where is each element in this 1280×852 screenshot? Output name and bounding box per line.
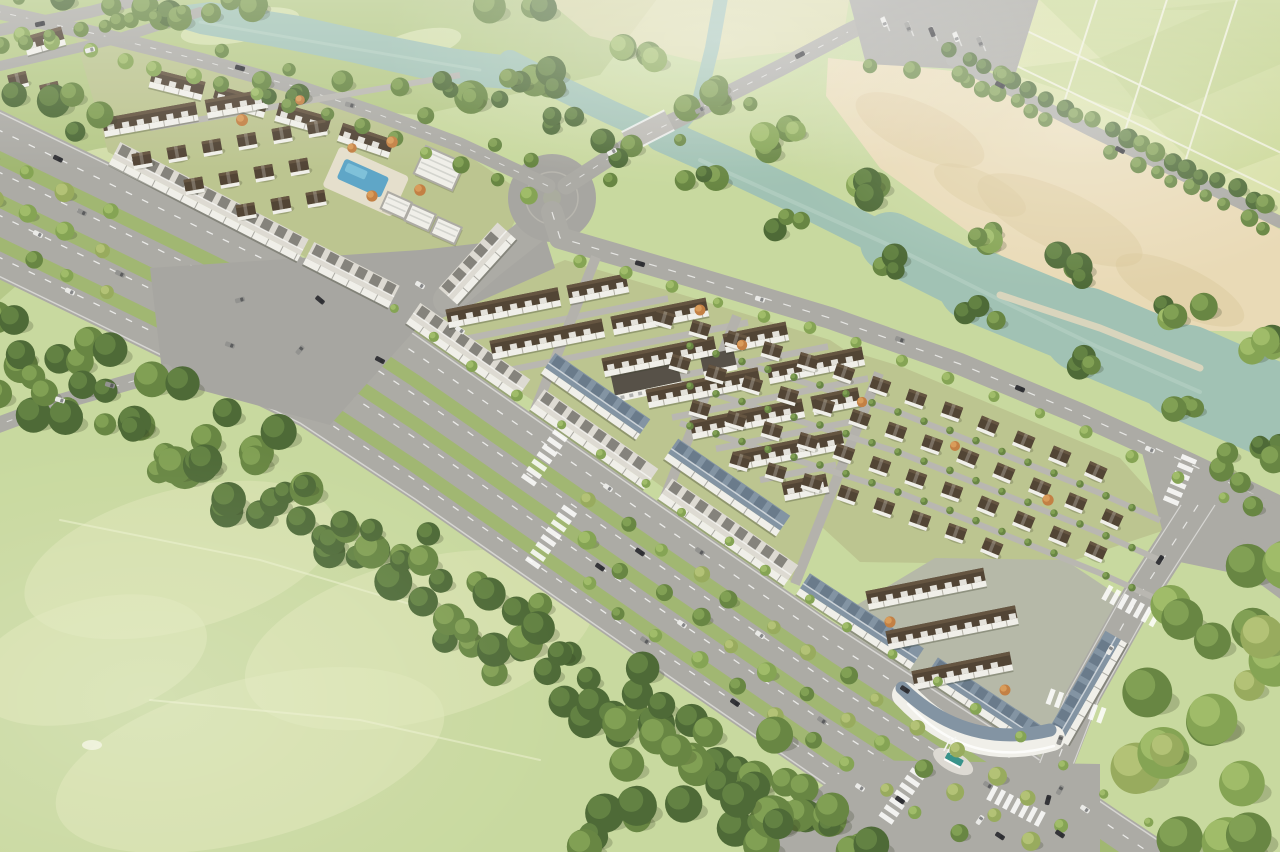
scene-canvas <box>0 0 1280 852</box>
aerial-masterplan-render <box>0 0 1280 852</box>
atmospheric-haze <box>0 0 1280 852</box>
